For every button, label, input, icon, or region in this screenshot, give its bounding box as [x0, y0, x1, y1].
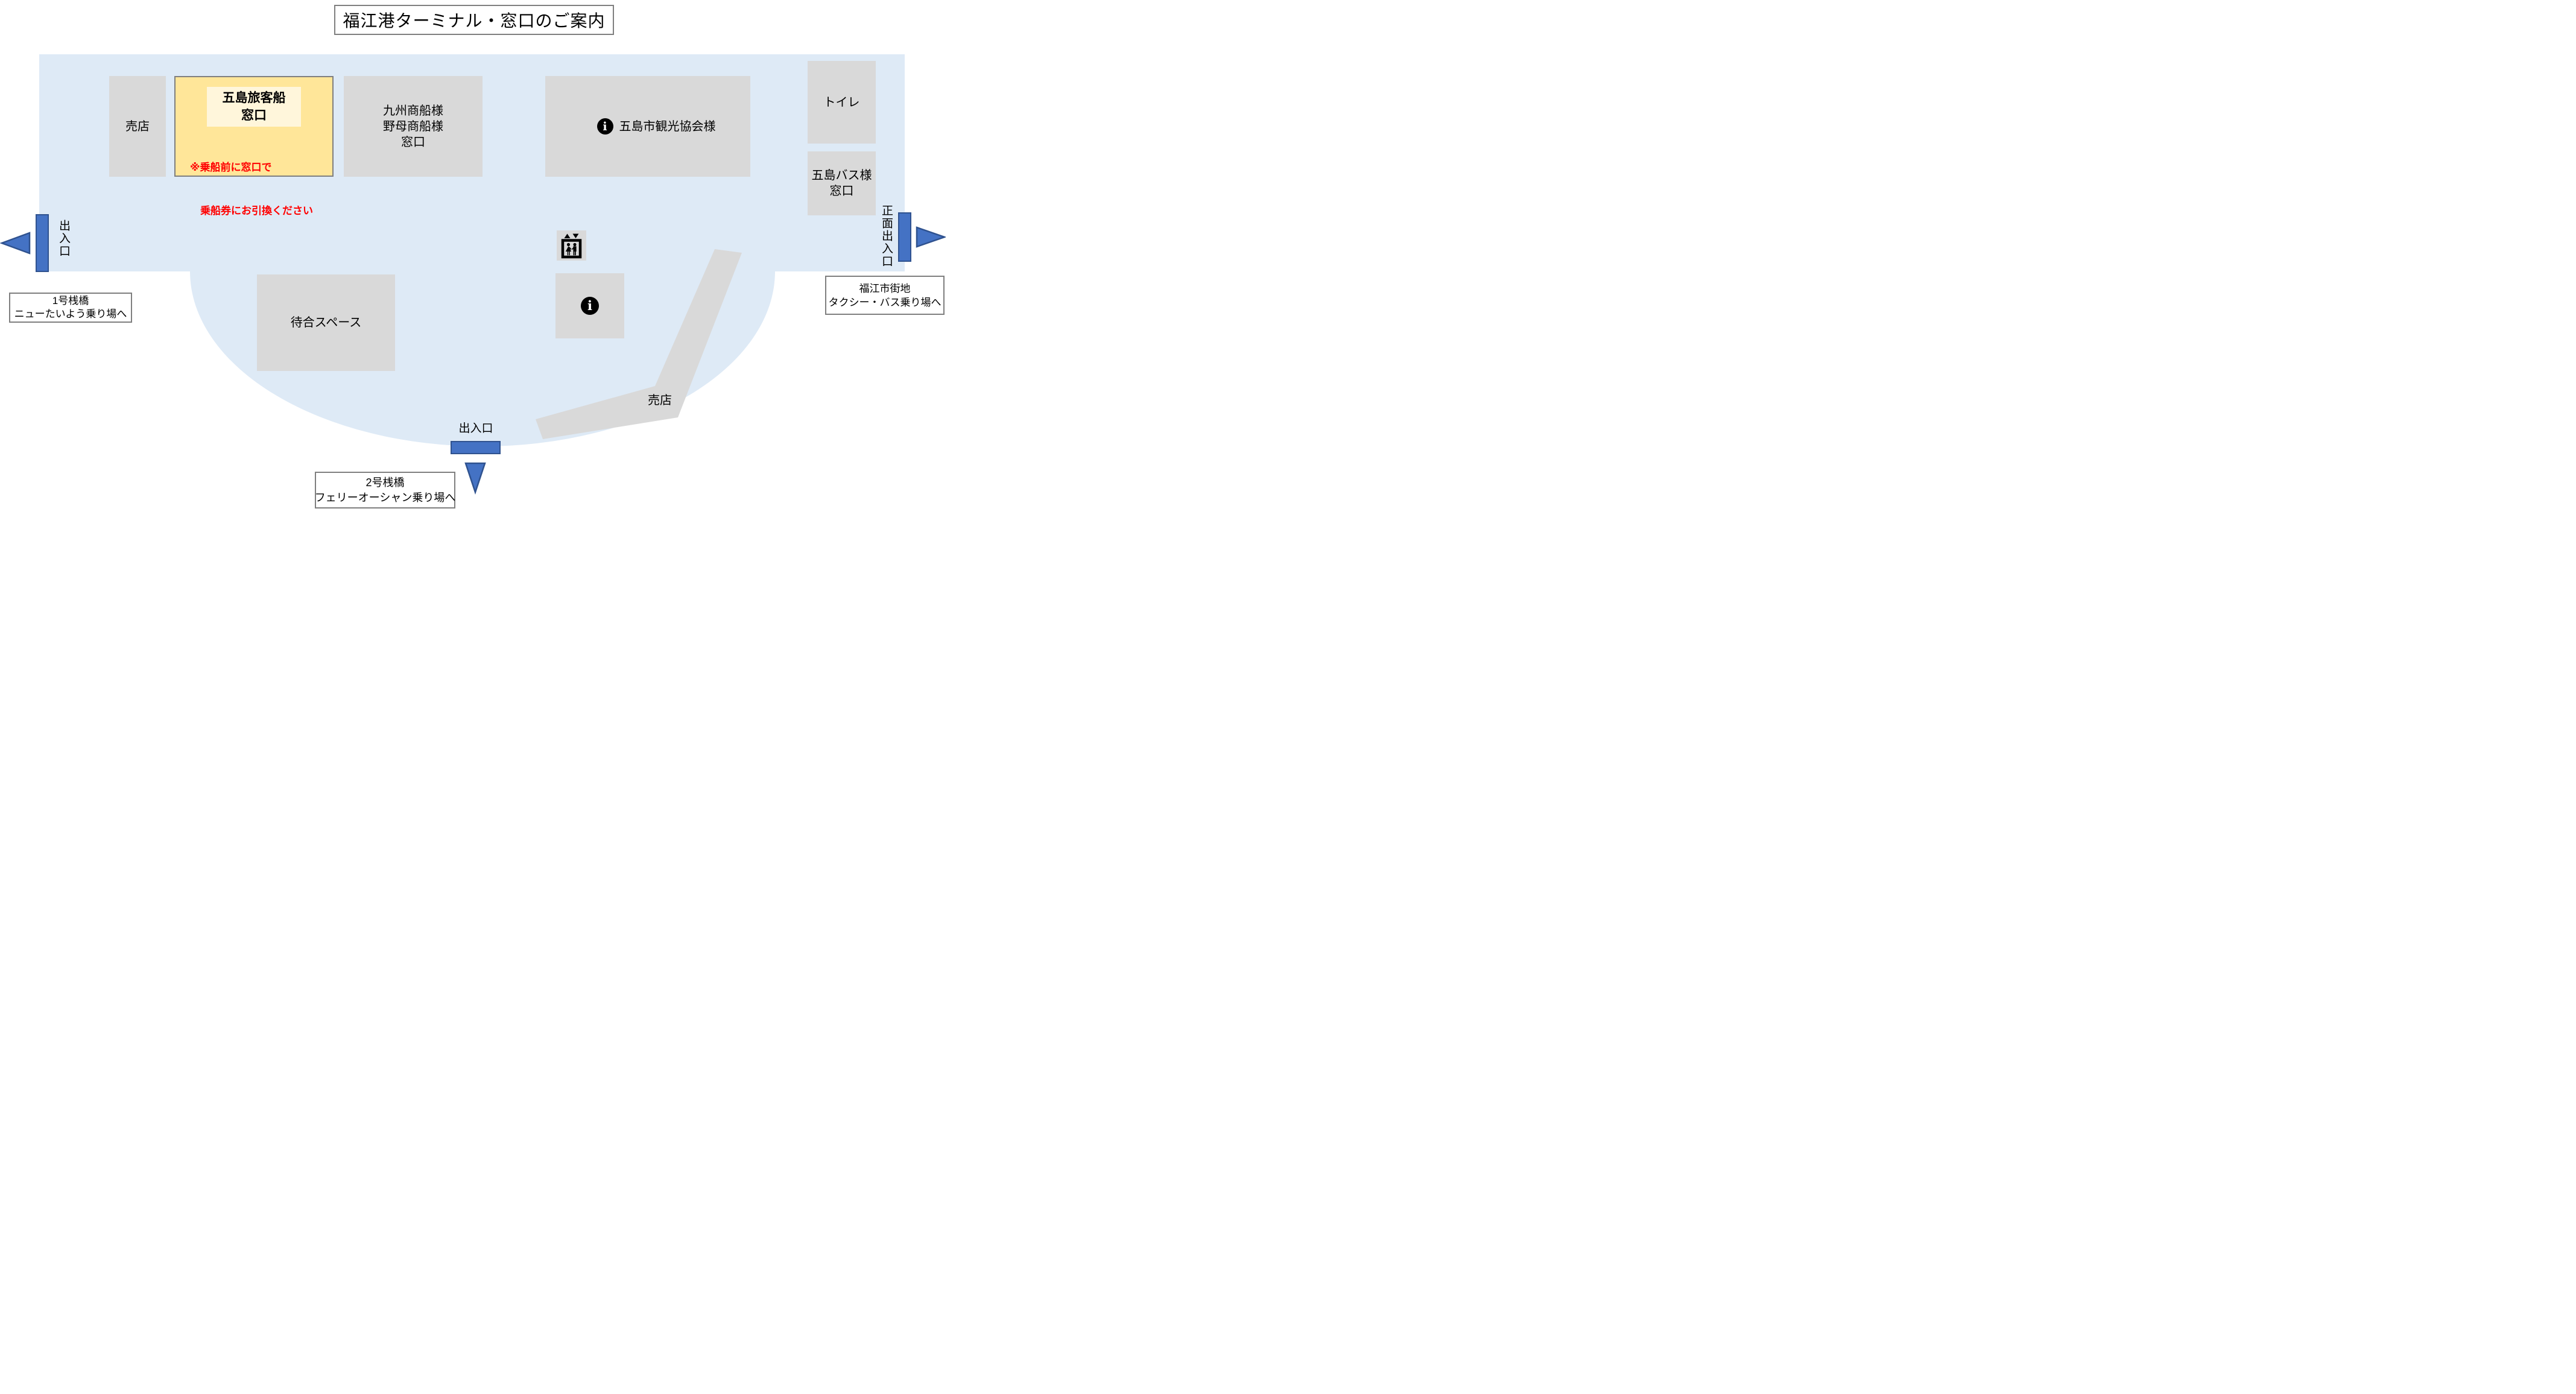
- city-dest-line1: 福江市街地: [859, 282, 911, 296]
- kyushu-line2: 野母商船様: [383, 119, 443, 135]
- pier2-exit-label: 出入口: [455, 419, 497, 436]
- room-kyushu-shosen-window: 九州商船様 野母商船様 窓口: [344, 76, 483, 177]
- kyushu-line1: 九州商船様: [383, 103, 443, 119]
- arrow-left-icon: [0, 232, 31, 255]
- room-shop-left-label: 売店: [125, 119, 150, 135]
- info-icon-center: i: [581, 297, 599, 315]
- bus-line1: 五島バス様: [812, 168, 872, 183]
- bus-line2: 窓口: [830, 183, 854, 199]
- destination-pier2-box: 2号桟橋 フェリーオーシャン乗り場へ: [315, 472, 455, 508]
- destination-pier1-box: 1号桟橋 ニューたいよう乗り場へ: [9, 293, 132, 323]
- city-dest-line2: タクシー・バス乗り場へ: [829, 296, 941, 309]
- room-shop-left: 売店: [109, 76, 166, 177]
- info-icon-glyph: i: [603, 119, 607, 135]
- goto-ticket-title-line1: 五島旅客船: [223, 89, 286, 107]
- info-icon: i: [597, 118, 613, 135]
- room-waiting-space: 待合スペース: [257, 274, 395, 371]
- pier2-entrance-door: [451, 441, 501, 454]
- pier2-dest-line2: フェリーオーシャン乗り場へ: [315, 490, 456, 505]
- left-exit-label: 出入口: [57, 220, 70, 271]
- kyushu-line3: 窓口: [401, 135, 425, 150]
- pier1-dest-line2: ニューたいよう乗り場へ: [14, 308, 127, 321]
- pier1-dest-line1: 1号桟橋: [52, 294, 89, 308]
- boarding-note: ※乗船前に窓口で 乗船券にお引換ください: [190, 131, 313, 247]
- room-tourism-association: i 五島市観光協会様: [545, 76, 750, 177]
- tourism-label: 五島市観光協会様: [619, 119, 716, 135]
- room-shop-diagonal-label: 売店: [648, 390, 672, 408]
- waiting-label: 待合スペース: [291, 315, 362, 331]
- room-goto-bus-window: 五島バス様 窓口: [808, 151, 876, 215]
- page-title: 福江港ターミナル・窓口のご案内: [343, 8, 605, 32]
- info-icon-center-glyph: i: [587, 298, 592, 314]
- boarding-note-line1: ※乗船前に窓口で: [190, 160, 313, 175]
- room-toilet: トイレ: [808, 61, 876, 144]
- terminal-map: 福江港ターミナル・窓口のご案内 売店 五島旅客船 窓口 ※乗船前に窓口で 乗船券…: [0, 0, 946, 512]
- left-entrance-door: [36, 214, 49, 272]
- goto-ticket-window-title: 五島旅客船 窓口: [207, 87, 301, 127]
- front-exit-label: 正面出入口: [879, 204, 893, 274]
- arrow-down-icon: [464, 462, 486, 493]
- elevator: [557, 230, 586, 261]
- goto-ticket-title-line2: 窓口: [241, 107, 267, 124]
- boarding-note-line2: 乗船券にお引換ください: [190, 204, 313, 218]
- room-goto-ferry-ticket-window: 五島旅客船 窓口 ※乗船前に窓口で 乗船券にお引換ください: [174, 76, 334, 177]
- destination-city-box: 福江市街地 タクシー・バス乗り場へ: [825, 276, 945, 315]
- front-entrance-door: [898, 212, 911, 262]
- pier2-dest-line1: 2号桟橋: [366, 475, 404, 490]
- information-counter: i: [555, 273, 624, 338]
- page-title-box: 福江港ターミナル・窓口のご案内: [334, 5, 614, 35]
- toilet-label: トイレ: [824, 95, 860, 110]
- arrow-right-icon: [916, 226, 946, 248]
- elevator-icon: [557, 230, 586, 261]
